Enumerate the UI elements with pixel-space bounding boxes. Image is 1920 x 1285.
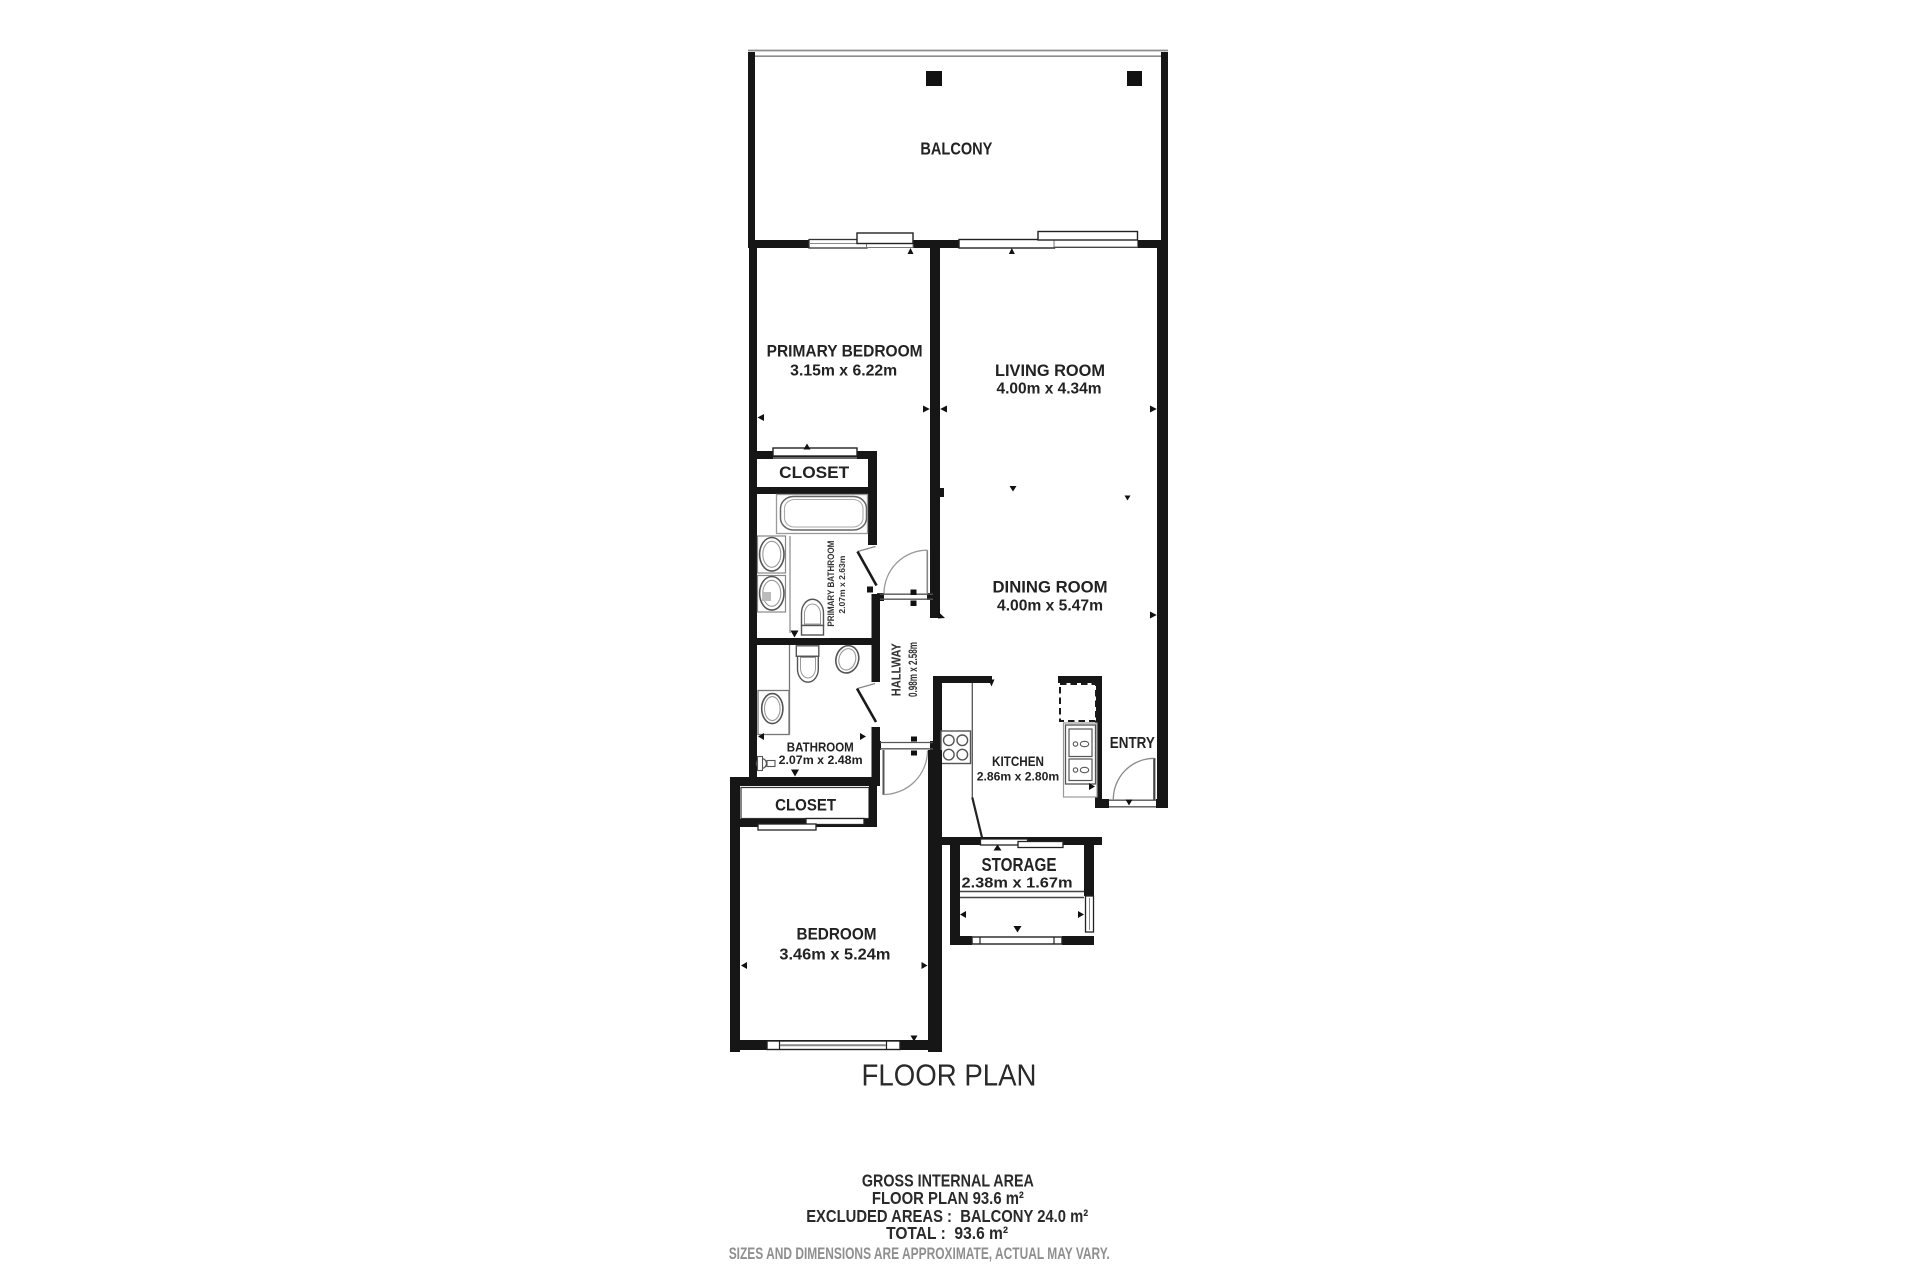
svg-text:3.15m x 6.22m: 3.15m x 6.22m bbox=[790, 363, 897, 380]
svg-text:PRIMARY BEDROOM: PRIMARY BEDROOM bbox=[767, 342, 923, 361]
svg-text:4.00m x 4.34m: 4.00m x 4.34m bbox=[997, 381, 1102, 398]
svg-text:2.07m x 2.48m: 2.07m x 2.48m bbox=[779, 755, 863, 767]
svg-text:2.07m x 2.63m: 2.07m x 2.63m bbox=[837, 555, 847, 613]
svg-text:CLOSET: CLOSET bbox=[779, 463, 850, 482]
svg-text:0.98m x 2.58m: 0.98m x 2.58m bbox=[908, 642, 920, 697]
svg-text:ENTRY: ENTRY bbox=[1110, 735, 1155, 752]
svg-text:STORAGE: STORAGE bbox=[982, 855, 1057, 875]
svg-text:PRIMARY BATHROOM: PRIMARY BATHROOM bbox=[826, 541, 837, 627]
svg-text:DINING ROOM: DINING ROOM bbox=[993, 578, 1108, 597]
svg-text:FLOOR PLAN: FLOOR PLAN bbox=[862, 1059, 1037, 1093]
svg-text:BEDROOM: BEDROOM bbox=[797, 925, 877, 944]
svg-text:BALCONY: BALCONY bbox=[920, 139, 992, 159]
svg-text:4.00m x 5.47m: 4.00m x 5.47m bbox=[997, 598, 1103, 615]
svg-text:3.46m x 5.24m: 3.46m x 5.24m bbox=[779, 947, 890, 964]
svg-text:KITCHEN: KITCHEN bbox=[992, 753, 1044, 769]
svg-text:HALLWAY: HALLWAY bbox=[889, 643, 904, 696]
svg-text:BATHROOM: BATHROOM bbox=[787, 741, 854, 755]
svg-text:SIZES AND DIMENSIONS ARE APPRO: SIZES AND DIMENSIONS ARE APPROXIMATE, AC… bbox=[729, 1244, 1110, 1263]
svg-text:CLOSET: CLOSET bbox=[775, 796, 837, 815]
svg-text:2.38m x 1.67m: 2.38m x 1.67m bbox=[962, 876, 1073, 892]
svg-text:LIVING ROOM: LIVING ROOM bbox=[995, 361, 1105, 380]
svg-text:TOTAL : 93.6 m²: TOTAL : 93.6 m² bbox=[886, 1223, 1008, 1243]
svg-text:2.86m x 2.80m: 2.86m x 2.80m bbox=[977, 772, 1060, 784]
